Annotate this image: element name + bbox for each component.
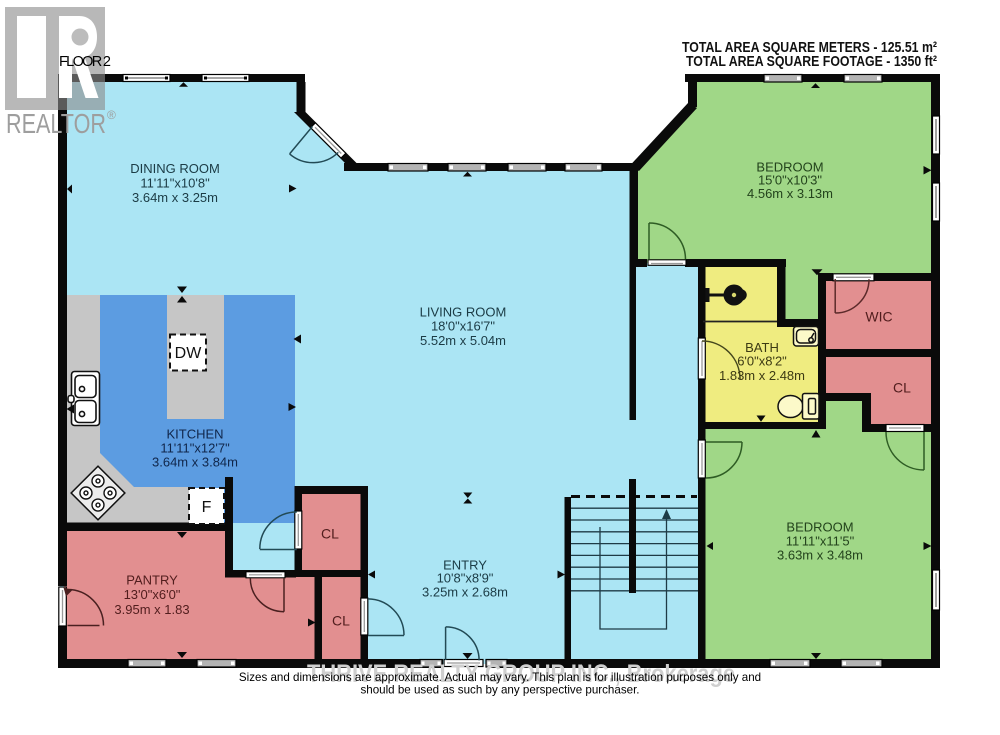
svg-text:3.25m x 2.68m: 3.25m x 2.68m bbox=[422, 585, 508, 600]
svg-text:3.63m x 3.48m: 3.63m x 3.48m bbox=[777, 548, 863, 563]
svg-text:REALTOR: REALTOR bbox=[6, 108, 106, 139]
svg-text:DINING ROOM: DINING ROOM bbox=[130, 161, 220, 176]
svg-text:3.64m x 3.25m: 3.64m x 3.25m bbox=[132, 190, 218, 205]
svg-text:13'0"x6'0": 13'0"x6'0" bbox=[124, 587, 181, 602]
svg-text:4.56m x 3.13m: 4.56m x 3.13m bbox=[747, 186, 833, 201]
svg-text:11'11"x12'7": 11'11"x12'7" bbox=[160, 441, 230, 456]
svg-text:KITCHEN: KITCHEN bbox=[166, 427, 223, 442]
svg-text:Sizes and dimensions are appro: Sizes and dimensions are approximate. Ac… bbox=[239, 671, 761, 684]
svg-text:18'0"x16'7": 18'0"x16'7" bbox=[431, 319, 495, 334]
svg-text:TOTAL AREA SQUARE FOOTAGE - 13: TOTAL AREA SQUARE FOOTAGE - 1350 ft² bbox=[686, 53, 937, 70]
svg-text:1.83m x 2.48m: 1.83m x 2.48m bbox=[719, 368, 805, 383]
svg-text:FLOOR 2: FLOOR 2 bbox=[59, 54, 111, 70]
svg-text:should be used as such by any: should be used as such by any perspectiv… bbox=[360, 684, 639, 697]
svg-text:3.95m x 1.83: 3.95m x 1.83 bbox=[114, 602, 189, 617]
svg-text:WIC: WIC bbox=[865, 309, 892, 325]
svg-text:CL: CL bbox=[321, 526, 339, 542]
svg-text:CL: CL bbox=[893, 380, 911, 396]
svg-text:10'8"x8'9": 10'8"x8'9" bbox=[437, 571, 494, 586]
svg-text:LIVING ROOM: LIVING ROOM bbox=[420, 305, 507, 320]
svg-text:11'11"x11'5": 11'11"x11'5" bbox=[786, 534, 855, 549]
svg-text:5.52m x 5.04m: 5.52m x 5.04m bbox=[420, 333, 506, 348]
svg-text:PANTRY: PANTRY bbox=[126, 573, 178, 588]
svg-text:BEDROOM: BEDROOM bbox=[786, 520, 853, 535]
svg-text:CL: CL bbox=[332, 613, 350, 629]
svg-text:F: F bbox=[202, 499, 212, 516]
svg-text:3.64m x 3.84m: 3.64m x 3.84m bbox=[152, 455, 238, 470]
svg-text:DW: DW bbox=[175, 345, 203, 362]
svg-text:6'0"x8'2": 6'0"x8'2" bbox=[737, 354, 787, 369]
svg-text:11'11"x10'8": 11'11"x10'8" bbox=[140, 176, 210, 191]
svg-text:®: ® bbox=[107, 108, 116, 122]
